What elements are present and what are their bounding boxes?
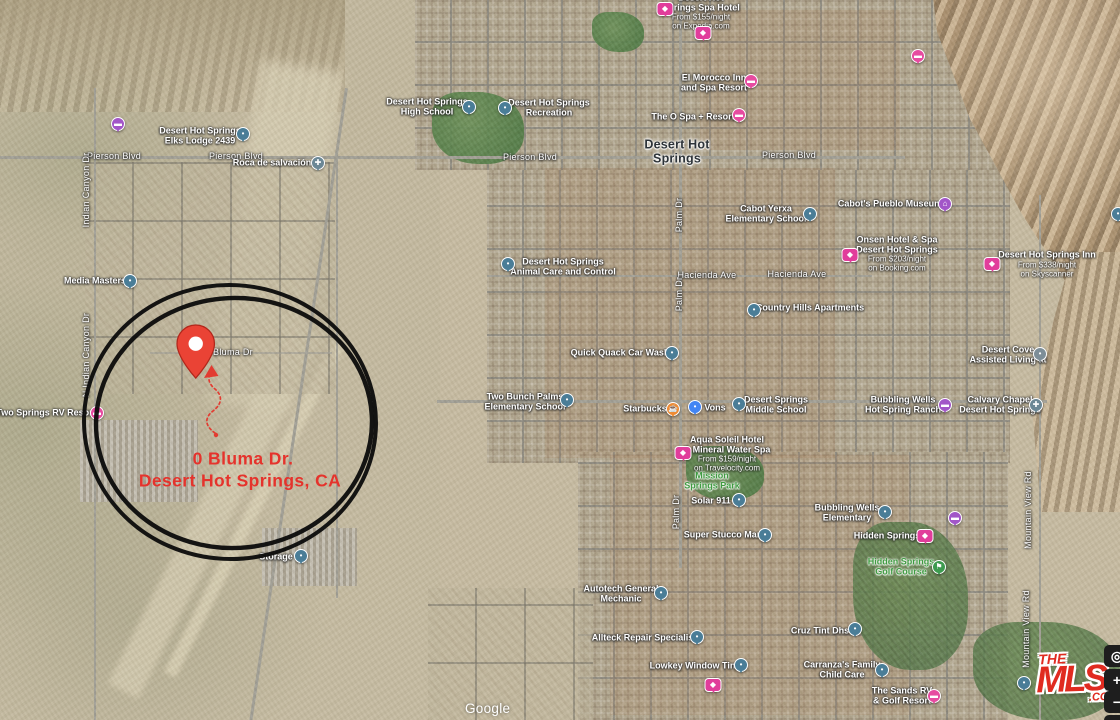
lodging-nw-pin-icon[interactable]: ▬ xyxy=(111,117,125,131)
city-label-line: Springs xyxy=(644,152,709,166)
satellite-map[interactable]: Pierson BlvdPierson BlvdPierson BlvdPier… xyxy=(0,0,1120,720)
desert-springs-middle-school-pin-icon[interactable]: • xyxy=(732,397,746,411)
my-location-button[interactable]: ◎ xyxy=(1104,645,1120,667)
street-label: Palm Dr xyxy=(674,277,684,312)
two-springs-rv-resort-pin-icon[interactable]: ▬ xyxy=(90,406,104,420)
zoom-out-button[interactable]: − xyxy=(1104,691,1120,713)
dhs-high-school-pin-icon[interactable]: • xyxy=(462,100,476,114)
country-hills-apartments-label: Country Hills Apartments xyxy=(756,303,864,313)
media-masters-label: Media Masters xyxy=(64,276,126,286)
allteck-repair-label: Allteck Repair Specialist xyxy=(592,633,697,643)
storage-label: Storage xyxy=(259,552,293,562)
hidden-springs-golf-label: Hidden SpringsGolf Course xyxy=(868,558,935,577)
bubbling-wells-ranch-pin-icon[interactable]: ▬ xyxy=(938,398,952,412)
street-label: Pierson Blvd xyxy=(87,151,141,161)
cruz-tint-dhs-label: Cruz Tint Dhs xyxy=(791,626,849,636)
street-label: Indian Canyon Dr xyxy=(81,153,91,228)
my-location-icon: ◎ xyxy=(1111,648,1120,665)
quick-quack-car-wash-pin-icon[interactable]: • xyxy=(665,346,679,360)
two-bunch-palms-elementary-label: Two Bunch PalmsElementary School xyxy=(484,393,565,412)
poi-edge-e-pin-icon[interactable]: • xyxy=(1111,207,1120,221)
hidden-springs-pin-icon[interactable]: ◆ xyxy=(917,529,934,543)
sands-rv-golf-resort-label: The Sands RV& Golf Resort xyxy=(872,687,932,706)
lowkey-window-tint-pin-icon[interactable]: • xyxy=(734,658,748,672)
allteck-repair-pin-icon[interactable]: • xyxy=(690,630,704,644)
two-springs-rv-resort-label: Two Springs RV Resort xyxy=(0,408,96,418)
cabot-yerxa-elementary-label: Cabot YerxaElementary School xyxy=(725,205,806,224)
starbucks-pin-icon[interactable]: ☕ xyxy=(666,402,680,416)
elks-lodge-label: Desert Hot SpringsElks Lodge 2439 xyxy=(159,127,241,146)
vons-pin-icon[interactable]: • xyxy=(688,400,702,414)
hotel-s-pin-icon[interactable]: ◆ xyxy=(705,678,722,692)
poi-se-pin-icon[interactable]: • xyxy=(1017,676,1031,690)
onsen-hotel-spa-pin-icon[interactable]: ◆ xyxy=(842,248,859,262)
carranzas-child-care-label: Carranza's FamilyChild Care xyxy=(804,661,881,680)
autotech-general-mechanic-label: Autotech GeneralMechanic xyxy=(583,585,658,604)
cruz-tint-dhs-pin-icon[interactable]: • xyxy=(848,622,862,636)
the-o-spa-pin-icon[interactable]: ▬ xyxy=(732,108,746,122)
solar-911-label: Solar 911 xyxy=(691,496,731,506)
quick-quack-car-wash-label: Quick Quack Car Wash xyxy=(571,348,670,358)
elks-lodge-pin-icon[interactable]: • xyxy=(236,127,250,141)
bubbling-wells-ranch-label: Bubbling WellsHot Spring Ranch xyxy=(865,396,941,415)
street-label: Hacienda Ave xyxy=(678,270,737,280)
dhs-recreation-label: Desert Hot SpringsRecreation xyxy=(508,99,590,118)
super-stucco-man-pin-icon[interactable]: • xyxy=(758,528,772,542)
spa-hotel-2-pin-icon[interactable]: ◆ xyxy=(695,26,712,40)
animal-care-control-pin-icon[interactable]: • xyxy=(501,257,515,271)
dhs-high-school-label: Desert Hot SpringsHigh School xyxy=(386,98,468,117)
cabots-pueblo-museum-pin-icon[interactable]: ⌂ xyxy=(938,197,952,211)
vons-label: Vons xyxy=(704,403,725,413)
storage-pin-icon[interactable]: • xyxy=(294,549,308,563)
desert-springs-middle-school-label: Desert SpringsMiddle School xyxy=(744,396,808,415)
dhs-recreation-pin-icon[interactable]: • xyxy=(498,101,512,115)
pegman-icon[interactable] xyxy=(1104,715,1120,720)
city-label: Desert Hot Springs xyxy=(644,139,709,166)
two-bunch-palms-elementary-pin-icon[interactable]: • xyxy=(560,393,574,407)
street-label: Pierson Blvd xyxy=(762,150,816,160)
bubbling-wells-elementary-pin-icon[interactable]: • xyxy=(878,505,892,519)
zoom-in-button[interactable]: + xyxy=(1104,669,1120,691)
animal-care-control-label: Desert Hot SpringsAnimal Care and Contro… xyxy=(510,258,616,277)
roca-de-salvacion-label: Roca de salvación xyxy=(233,158,312,168)
solar-911-pin-icon[interactable]: • xyxy=(732,493,746,507)
aqua-soleil-hotel-pin-icon[interactable]: ◆ xyxy=(675,446,692,460)
hidden-springs-label: Hidden Springs xyxy=(854,531,921,541)
roca-de-salvacion-pin-icon[interactable]: ✚ xyxy=(311,156,325,170)
bubbling-wells-elementary-label: Bubbling WellsElementary xyxy=(815,504,880,523)
annotation-address-line2: Desert Hot Springs, CA xyxy=(139,471,341,492)
dhs-inn-pin-icon[interactable]: ◆ xyxy=(984,257,1001,271)
street-label: N Indian Canyon Dr xyxy=(81,313,91,397)
dhs-spa-hotel-pin-icon[interactable]: ◆ xyxy=(657,2,674,16)
street-label: Mountain View Rd xyxy=(1023,471,1033,549)
poi-layer: Pierson BlvdPierson BlvdPierson BlvdPier… xyxy=(0,0,1120,720)
sands-rv-golf-resort-pin-icon[interactable]: ▬ xyxy=(927,689,941,703)
annotation-address-line1: 0 Bluma Dr. xyxy=(193,449,294,470)
super-stucco-man-label: Super Stucco Man xyxy=(684,530,763,540)
lodging-hidden-pin-icon[interactable]: ▬ xyxy=(948,511,962,525)
onsen-hotel-spa-label: Onsen Hotel & SpaDesert Hot SpringsFrom … xyxy=(856,236,938,273)
street-label: Palm Dr xyxy=(671,495,681,530)
the-o-spa-label: The O Spa + Resort xyxy=(651,112,734,122)
el-morocco-inn-label: El Morocco Innand Spa Resort xyxy=(681,74,747,93)
country-hills-apartments-pin-icon[interactable]: • xyxy=(747,303,761,317)
street-label: Mountain View Rd xyxy=(1021,590,1031,668)
desert-cove-assisted-living-pin-icon[interactable]: • xyxy=(1033,347,1047,361)
aqua-soleil-hotel-label: Aqua Soleil Hotel& Mineral Water SpaFrom… xyxy=(684,436,771,473)
lowkey-window-tint-label: Lowkey Window Tint xyxy=(650,661,739,671)
cabots-pueblo-museum-label: Cabot's Pueblo Museum xyxy=(838,199,942,209)
street-label: Bluma Dr xyxy=(213,347,253,357)
dhs-inn-label: Desert Hot Springs InnFrom $338/nighton … xyxy=(998,250,1096,278)
autotech-general-mechanic-pin-icon[interactable]: • xyxy=(654,586,668,600)
el-morocco-inn-pin-icon[interactable]: ▬ xyxy=(744,74,758,88)
cabot-yerxa-elementary-pin-icon[interactable]: • xyxy=(803,207,817,221)
hidden-springs-golf-pin-icon[interactable]: ⚑ xyxy=(932,560,946,574)
city-label-line: Desert Hot xyxy=(644,139,709,153)
hotel-ne-pin-icon[interactable]: ▬ xyxy=(911,49,925,63)
starbucks-label: Starbucks xyxy=(623,404,667,414)
calvary-chapel-pin-icon[interactable]: ✚ xyxy=(1029,398,1043,412)
media-masters-pin-icon[interactable]: • xyxy=(123,274,137,288)
street-label: Palm Dr xyxy=(674,198,684,233)
carranzas-child-care-pin-icon[interactable]: • xyxy=(875,663,889,677)
street-label: Hacienda Ave xyxy=(768,269,827,279)
google-watermark: Google xyxy=(465,701,510,716)
street-label: Pierson Blvd xyxy=(503,152,557,162)
mission-springs-park-label: MissionSprings Park xyxy=(684,472,740,491)
